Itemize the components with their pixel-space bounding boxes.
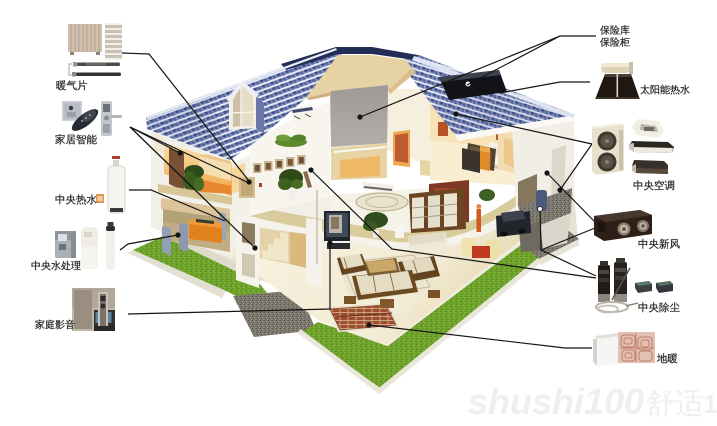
svg-text:shushi100: shushi100: [468, 381, 644, 422]
svg-text:100: 100: [703, 389, 717, 419]
